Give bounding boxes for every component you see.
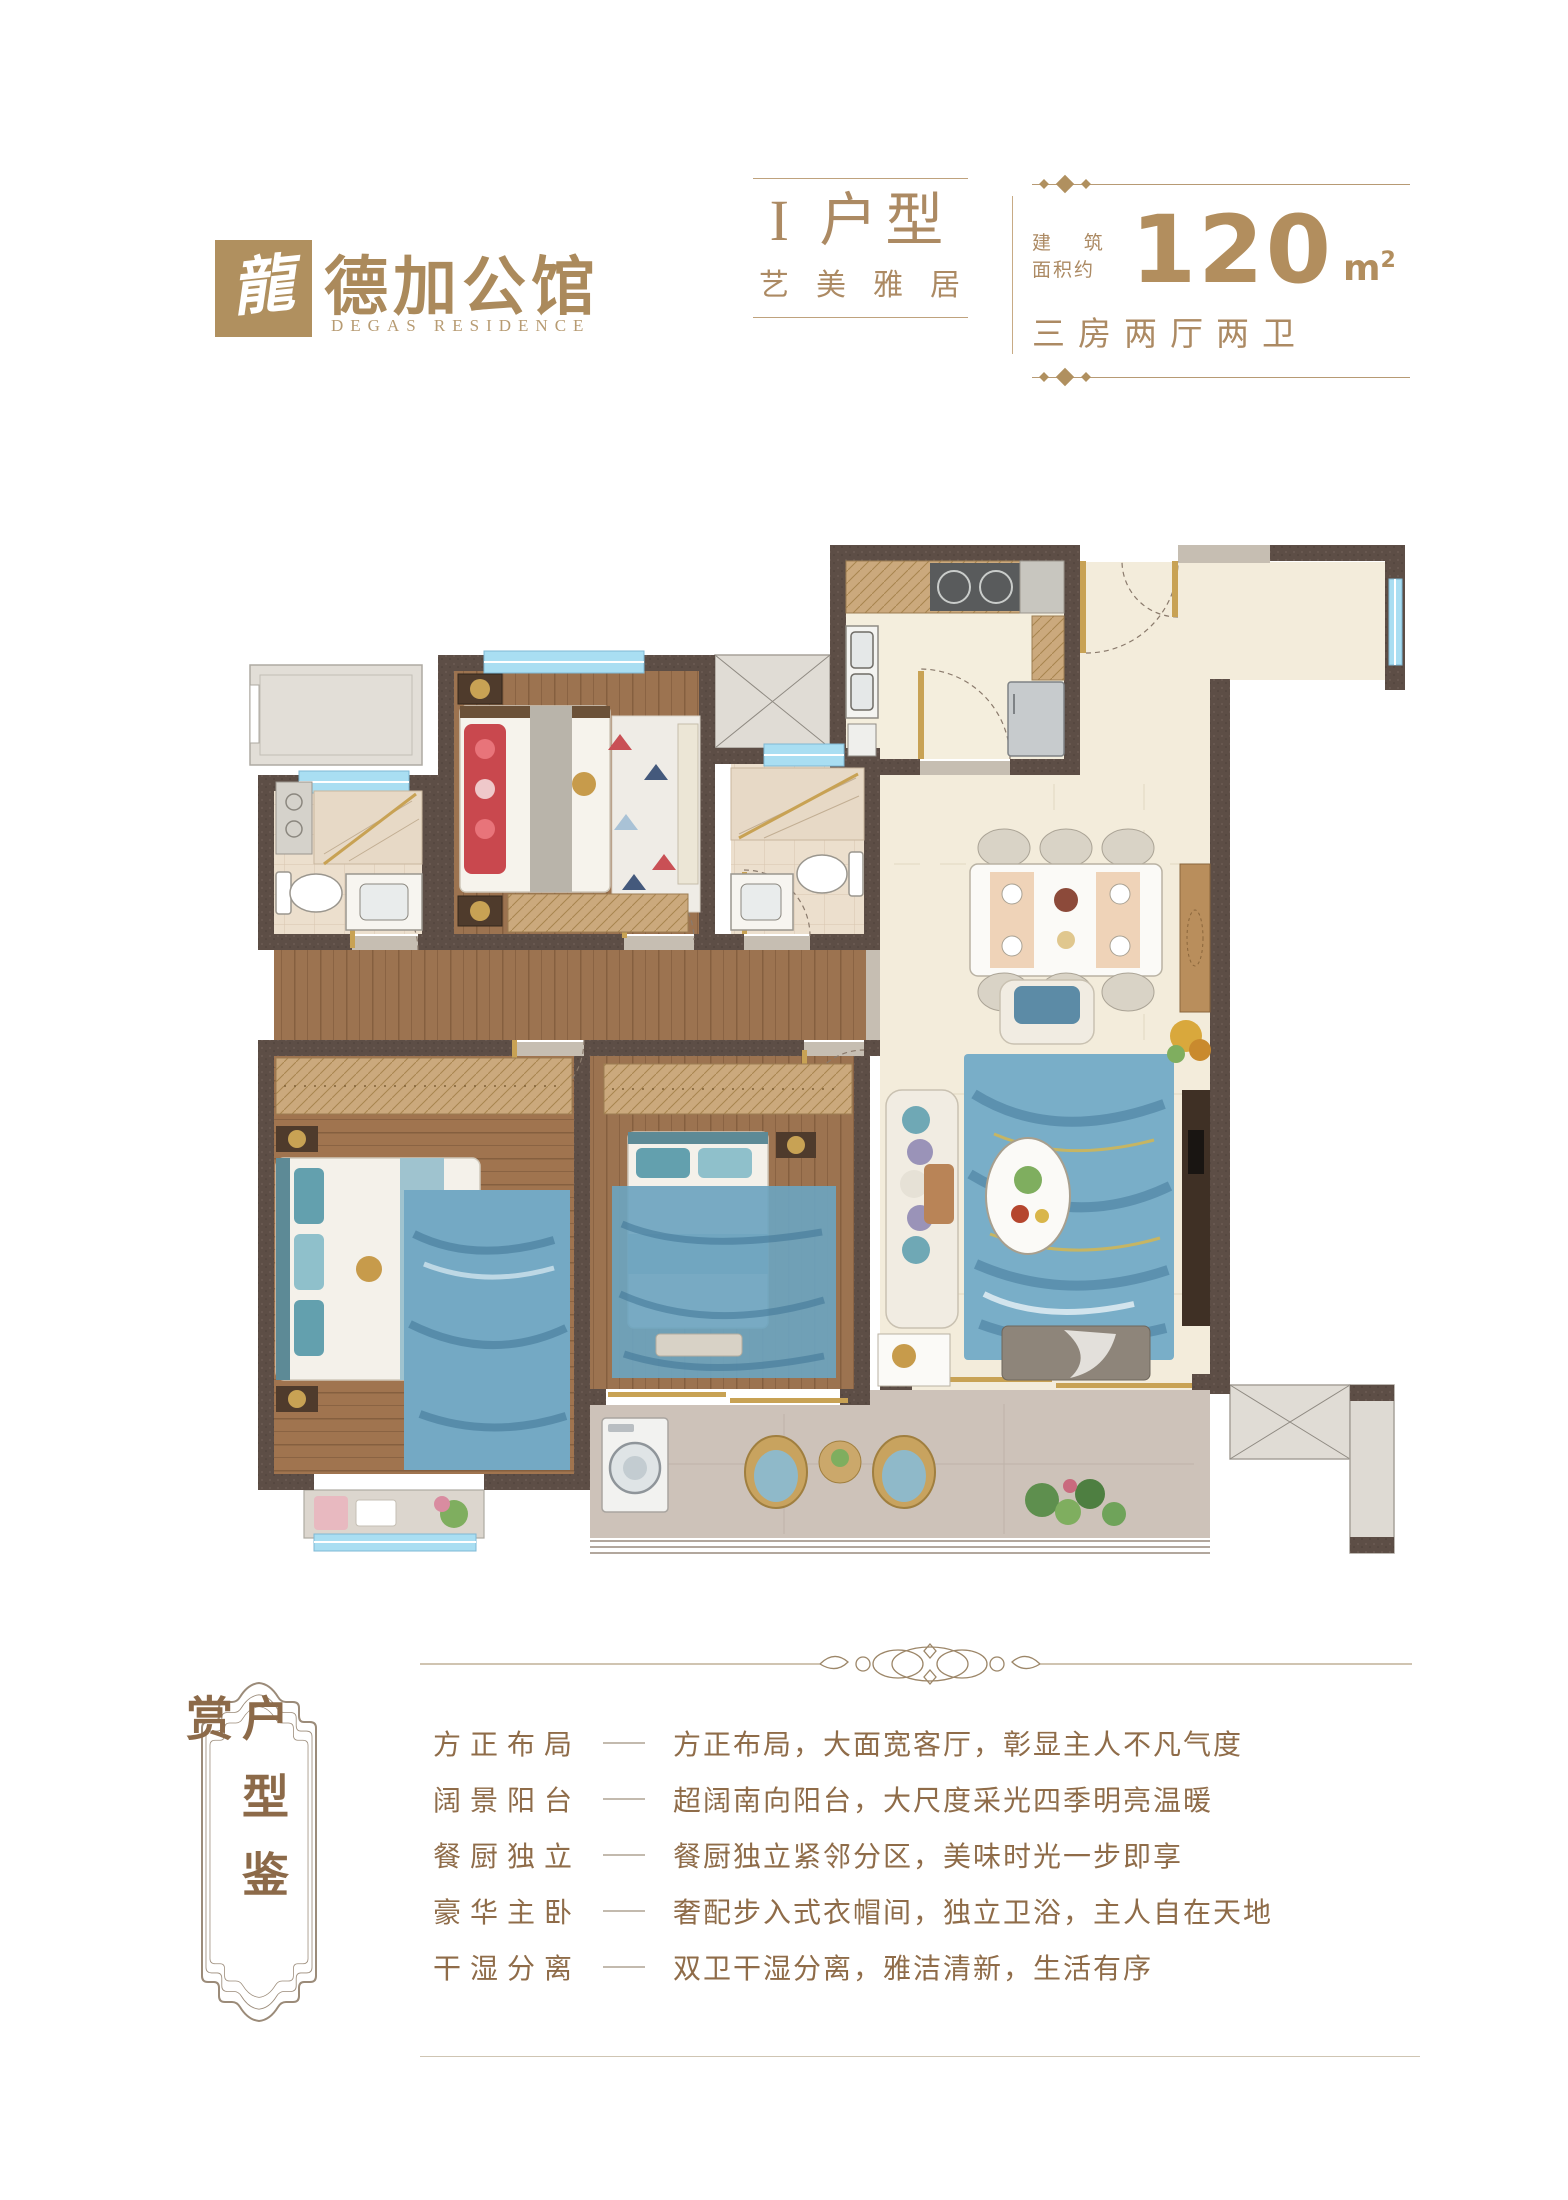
window-master-bay: [314, 1534, 476, 1551]
feature-desc: 双卫干湿分离，雅洁清新，生活有序: [673, 1947, 1153, 1987]
armchair: [1000, 980, 1094, 1044]
diamond-rule-bottom: [1032, 371, 1410, 384]
bed-2: [460, 706, 610, 892]
section-title-vertical: 户型鉴赏: [232, 1694, 288, 2004]
feature-desc: 超阔南向阳台，大尺度采光四季明亮温暖: [673, 1779, 1213, 1819]
nightstand: [458, 896, 502, 926]
service-platform: [250, 665, 422, 765]
nightstand: [776, 1132, 816, 1158]
dash-rule: [603, 1798, 645, 1800]
vanity-1: [346, 874, 422, 930]
feature-row: 方正布局 方正布局，大面宽客厅，彰显主人不凡气度: [433, 1727, 1433, 1759]
sofa: [886, 1090, 958, 1328]
feature-desc: 方正布局，大面宽客厅，彰显主人不凡气度: [673, 1723, 1243, 1763]
sideboard: [1180, 864, 1210, 1012]
feature-desc: 奢配步入式衣帽间，独立卫浴，主人自在天地: [673, 1891, 1273, 1931]
laundry-unit: [276, 782, 312, 854]
feature-label: 干湿分离: [433, 1947, 585, 1987]
window-masterbath: [764, 744, 844, 766]
footer-rule: [420, 2056, 1420, 2057]
nightstand: [276, 1126, 318, 1152]
desk-2: [678, 724, 698, 884]
area-value: 120: [1131, 210, 1333, 293]
floorplan-poster: 龍 德加公馆 DEGAS RESIDENCE I 户型 艺美雅居 建 筑面积约 …: [0, 0, 1568, 2200]
feature-desc: 餐厨独立紧邻分区，美味时光一步即享: [673, 1835, 1183, 1875]
feature-label: 豪华主卧: [433, 1891, 585, 1931]
dash-rule: [603, 1910, 645, 1912]
fridge: [1008, 682, 1064, 756]
nightstand: [276, 1386, 318, 1412]
dash-rule: [603, 1966, 645, 1968]
ornamental-divider: [420, 1642, 1412, 1686]
floorplan-drawing: [164, 534, 1412, 1566]
layout-spec: 三房两厅两卫: [1032, 307, 1410, 355]
unit-title: I 户型: [753, 189, 968, 253]
toilet-1: [276, 872, 342, 914]
logo-calligraphy-glyph: 龍: [229, 252, 297, 320]
washing-machine: [602, 1418, 668, 1512]
brand-name-en: DEGAS RESIDENCE: [331, 316, 590, 336]
wardrobe-3: [604, 1064, 852, 1114]
ac-platform: [1230, 1385, 1394, 1553]
balcony-chair: [873, 1436, 935, 1508]
equipment-platform: [715, 655, 830, 748]
feature-label: 方正布局: [433, 1723, 585, 1763]
bench-3: [656, 1334, 742, 1356]
kitchen-sink: [846, 626, 878, 718]
window-entry: [1389, 579, 1402, 665]
brand-name: 德加公馆: [324, 236, 624, 328]
master-rug: [404, 1190, 570, 1470]
dash-rule: [603, 1854, 645, 1856]
divider-flourish: [820, 1644, 1040, 1684]
coffee-table: [986, 1138, 1070, 1254]
corridor-floor: [274, 950, 866, 1040]
feature-row: 豪华主卧 奢配步入式衣帽间，独立卫浴，主人自在天地: [433, 1895, 1433, 1927]
feature-label: 阔景阳台: [433, 1779, 585, 1819]
bedroom-3: [604, 1064, 852, 1378]
brand-logo: 龍: [215, 240, 312, 337]
feature-label: 餐厨独立: [433, 1835, 585, 1875]
rule-top: [753, 178, 968, 179]
bench-daybed: [1002, 1326, 1150, 1380]
window-bedroom2: [484, 651, 644, 673]
vertical-divider: [1012, 196, 1013, 354]
feature-list: 方正布局 方正布局，大面宽客厅，彰显主人不凡气度 阔景阳台 超阔南向阳台，大尺度…: [433, 1727, 1433, 2007]
rule-bottom: [753, 317, 968, 318]
area-unit: m2: [1343, 248, 1396, 289]
area-label: 建 筑面积约: [1032, 230, 1117, 285]
balcony-chair: [745, 1436, 807, 1508]
area-block: 建 筑面积约 120 m2 三房两厅两卫: [1032, 178, 1410, 384]
unit-subtitle: 艺美雅居: [753, 271, 968, 301]
dresser-2: [508, 894, 688, 932]
tv-console: [1182, 1090, 1210, 1326]
balcony-rail: [590, 1541, 1210, 1553]
dash-rule: [603, 1742, 645, 1744]
nightstand: [458, 674, 502, 704]
balcony-table: [819, 1441, 861, 1483]
feature-row: 餐厨独立 餐厨独立紧邻分区，美味时光一步即享: [433, 1839, 1433, 1871]
toilet-2: [797, 852, 863, 896]
unit-title-block: I 户型 艺美雅居: [753, 178, 968, 318]
vanity-2: [731, 874, 793, 930]
feature-row: 干湿分离 双卫干湿分离，雅洁清新，生活有序: [433, 1951, 1433, 1983]
feature-row: 阔景阳台 超阔南向阳台，大尺度采光四季明亮温暖: [433, 1783, 1433, 1815]
window-bath1: [299, 771, 409, 793]
diamond-rule-top: [1032, 178, 1410, 191]
stove: [930, 563, 1020, 611]
